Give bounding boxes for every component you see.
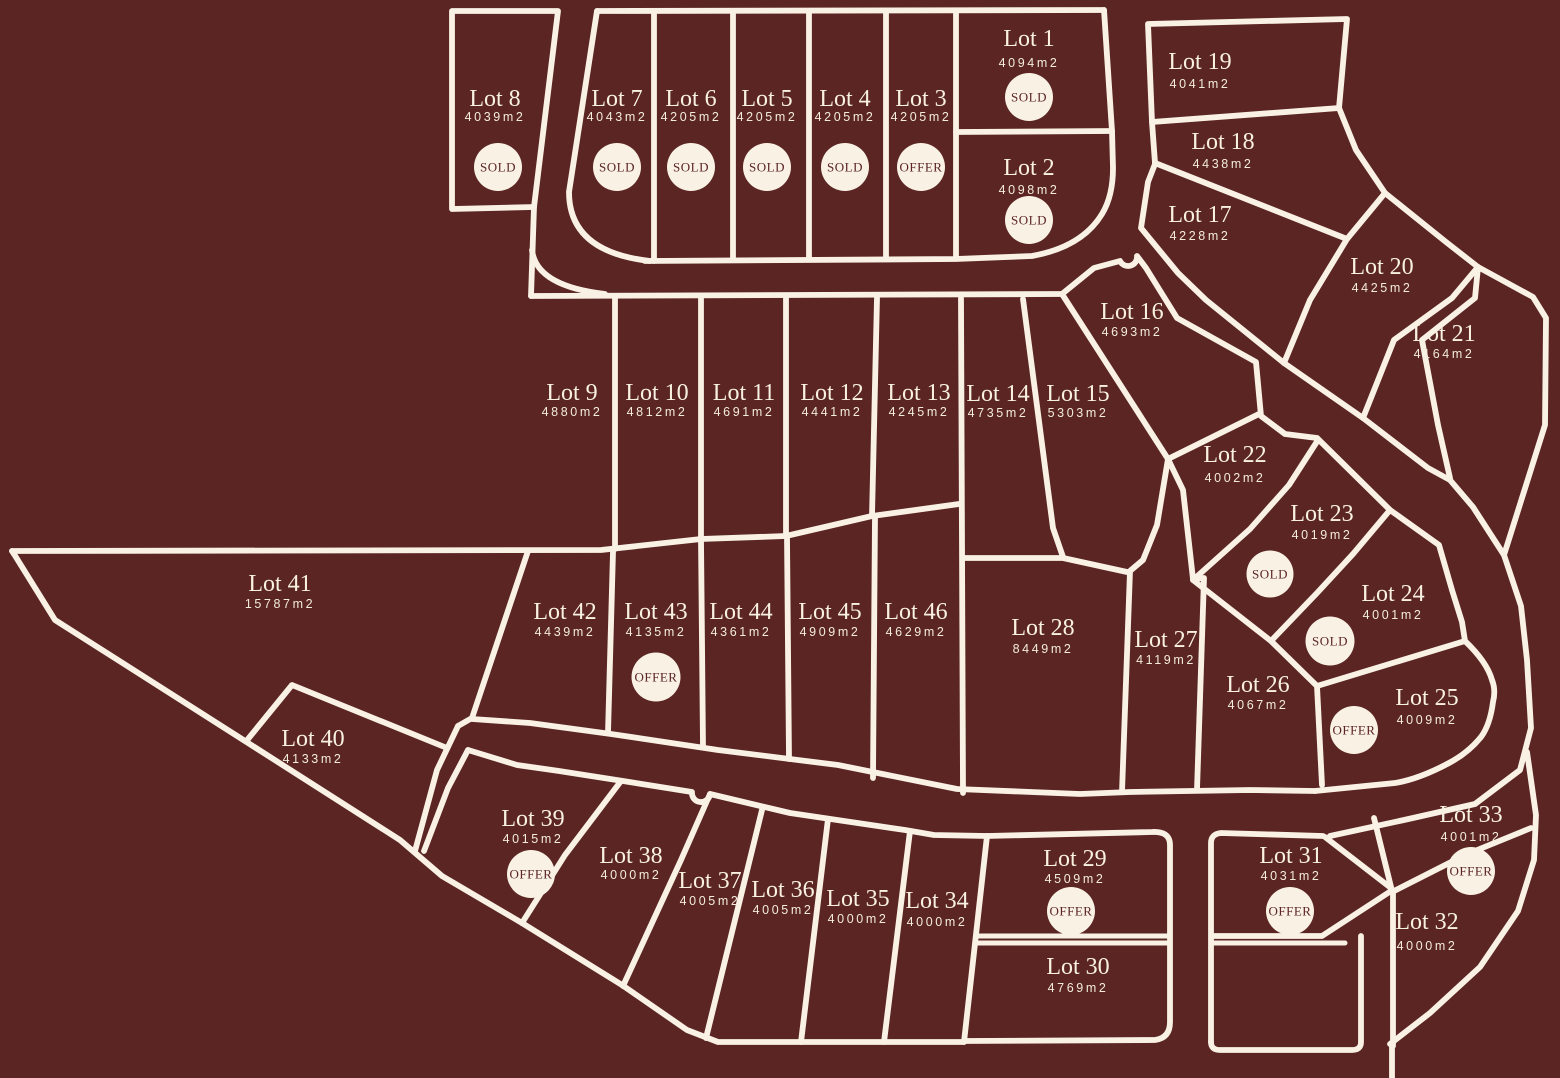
svg-text:SOLD: SOLD [673, 160, 709, 175]
svg-text:Lot 8: Lot 8 [469, 86, 520, 112]
svg-text:OFFER: OFFER [1050, 904, 1093, 919]
svg-text:4361m2: 4361m2 [711, 625, 772, 639]
svg-text:4000m2: 4000m2 [828, 912, 889, 926]
svg-text:Lot 31: Lot 31 [1259, 843, 1322, 869]
svg-text:SOLD: SOLD [827, 160, 863, 175]
svg-text:Lot 7: Lot 7 [591, 86, 642, 112]
svg-text:Lot 21: Lot 21 [1412, 321, 1475, 347]
svg-text:15787m2: 15787m2 [245, 597, 315, 611]
svg-text:Lot 11: Lot 11 [713, 380, 775, 406]
svg-text:SOLD: SOLD [1011, 213, 1047, 228]
svg-text:Lot 25: Lot 25 [1395, 685, 1458, 711]
svg-text:SOLD: SOLD [1252, 567, 1288, 582]
svg-text:Lot 13: Lot 13 [887, 380, 950, 406]
svg-text:4205m2: 4205m2 [737, 110, 798, 124]
svg-text:Lot 20: Lot 20 [1350, 254, 1413, 280]
svg-text:Lot 24: Lot 24 [1361, 581, 1424, 607]
svg-text:Lot 2: Lot 2 [1003, 155, 1054, 181]
svg-text:4228m2: 4228m2 [1170, 229, 1231, 243]
svg-text:4005m2: 4005m2 [680, 894, 741, 908]
svg-text:4164m2: 4164m2 [1414, 347, 1475, 361]
svg-text:Lot 39: Lot 39 [501, 806, 564, 832]
svg-text:Lot 40: Lot 40 [281, 726, 344, 752]
svg-text:Lot 30: Lot 30 [1046, 954, 1109, 980]
svg-text:Lot 22: Lot 22 [1203, 442, 1266, 468]
svg-text:4735m2: 4735m2 [968, 406, 1029, 420]
svg-text:Lot 35: Lot 35 [826, 886, 889, 912]
svg-text:Lot 42: Lot 42 [533, 599, 596, 625]
svg-text:SOLD: SOLD [749, 160, 785, 175]
svg-text:4031m2: 4031m2 [1261, 869, 1322, 883]
svg-text:SOLD: SOLD [1312, 634, 1348, 649]
svg-text:4769m2: 4769m2 [1048, 981, 1109, 995]
svg-text:4205m2: 4205m2 [661, 110, 722, 124]
svg-text:Lot 10: Lot 10 [625, 380, 688, 406]
svg-text:Lot 26: Lot 26 [1226, 672, 1289, 698]
svg-text:Lot 45: Lot 45 [798, 599, 861, 625]
svg-text:OFFER: OFFER [1450, 864, 1493, 879]
svg-text:4133m2: 4133m2 [283, 752, 344, 766]
svg-text:OFFER: OFFER [635, 670, 678, 685]
svg-text:Lot 18: Lot 18 [1191, 129, 1254, 155]
svg-text:SOLD: SOLD [1011, 90, 1047, 105]
svg-text:4119m2: 4119m2 [1136, 653, 1196, 667]
svg-text:Lot 27: Lot 27 [1134, 627, 1197, 653]
svg-text:OFFER: OFFER [1333, 723, 1376, 738]
svg-text:4039m2: 4039m2 [465, 110, 526, 124]
svg-text:4441m2: 4441m2 [802, 405, 863, 419]
svg-text:Lot 12: Lot 12 [800, 380, 863, 406]
svg-text:Lot 5: Lot 5 [741, 86, 792, 112]
svg-text:Lot 9: Lot 9 [546, 380, 597, 406]
svg-text:OFFER: OFFER [510, 867, 553, 882]
svg-text:4812m2: 4812m2 [627, 405, 688, 419]
svg-text:4019m2: 4019m2 [1292, 528, 1353, 542]
svg-text:Lot 41: Lot 41 [248, 571, 311, 597]
svg-text:Lot 37: Lot 37 [678, 868, 741, 894]
svg-text:Lot 4: Lot 4 [819, 86, 870, 112]
svg-text:4693m2: 4693m2 [1102, 325, 1163, 339]
svg-text:4001m2: 4001m2 [1441, 830, 1502, 844]
svg-text:4909m2: 4909m2 [800, 625, 861, 639]
svg-text:Lot 43: Lot 43 [624, 599, 687, 625]
svg-text:4691m2: 4691m2 [714, 405, 775, 419]
svg-text:OFFER: OFFER [1269, 904, 1312, 919]
svg-text:4000m2: 4000m2 [907, 915, 968, 929]
svg-text:Lot 33: Lot 33 [1439, 802, 1502, 828]
svg-text:4439m2: 4439m2 [535, 625, 596, 639]
svg-text:Lot 14: Lot 14 [966, 381, 1029, 407]
svg-text:4880m2: 4880m2 [542, 405, 603, 419]
svg-text:4000m2: 4000m2 [1397, 939, 1458, 953]
svg-text:Lot 28: Lot 28 [1011, 615, 1074, 641]
svg-text:4002m2: 4002m2 [1205, 471, 1266, 485]
svg-text:4425m2: 4425m2 [1352, 281, 1413, 295]
svg-text:Lot 6: Lot 6 [665, 86, 716, 112]
svg-text:4438m2: 4438m2 [1193, 157, 1254, 171]
svg-text:4629m2: 4629m2 [886, 625, 947, 639]
svg-text:Lot 17: Lot 17 [1168, 202, 1231, 228]
svg-text:4094m2: 4094m2 [999, 56, 1060, 70]
svg-text:Lot 3: Lot 3 [895, 86, 946, 112]
svg-text:5303m2: 5303m2 [1048, 406, 1109, 420]
svg-text:4009m2: 4009m2 [1397, 713, 1458, 727]
svg-text:4015m2: 4015m2 [503, 832, 564, 846]
svg-text:4043m2: 4043m2 [587, 110, 648, 124]
svg-text:4005m2: 4005m2 [753, 903, 814, 917]
svg-text:4135m2: 4135m2 [626, 625, 687, 639]
svg-text:4509m2: 4509m2 [1045, 872, 1106, 886]
svg-text:4001m2: 4001m2 [1363, 608, 1424, 622]
svg-text:Lot 46: Lot 46 [884, 599, 947, 625]
svg-text:4067m2: 4067m2 [1228, 698, 1289, 712]
svg-text:Lot 1: Lot 1 [1003, 26, 1054, 52]
svg-text:Lot 38: Lot 38 [599, 843, 662, 869]
svg-text:Lot 19: Lot 19 [1168, 49, 1231, 75]
svg-text:Lot 44: Lot 44 [709, 599, 772, 625]
svg-text:Lot 29: Lot 29 [1043, 846, 1106, 872]
svg-text:Lot 34: Lot 34 [905, 888, 968, 914]
svg-text:4205m2: 4205m2 [891, 110, 952, 124]
svg-text:4000m2: 4000m2 [601, 868, 662, 882]
svg-text:OFFER: OFFER [900, 160, 943, 175]
svg-text:Lot 32: Lot 32 [1395, 909, 1458, 935]
svg-text:SOLD: SOLD [599, 160, 635, 175]
svg-text:Lot 16: Lot 16 [1100, 299, 1163, 325]
svg-text:Lot 15: Lot 15 [1046, 381, 1109, 407]
svg-text:4245m2: 4245m2 [889, 405, 950, 419]
svg-text:SOLD: SOLD [480, 160, 516, 175]
svg-text:4098m2: 4098m2 [999, 183, 1060, 197]
svg-text:4205m2: 4205m2 [815, 110, 876, 124]
svg-text:8449m2: 8449m2 [1013, 642, 1074, 656]
svg-text:4041m2: 4041m2 [1170, 77, 1231, 91]
svg-text:Lot 36: Lot 36 [751, 877, 814, 903]
svg-text:Lot 23: Lot 23 [1290, 501, 1353, 527]
